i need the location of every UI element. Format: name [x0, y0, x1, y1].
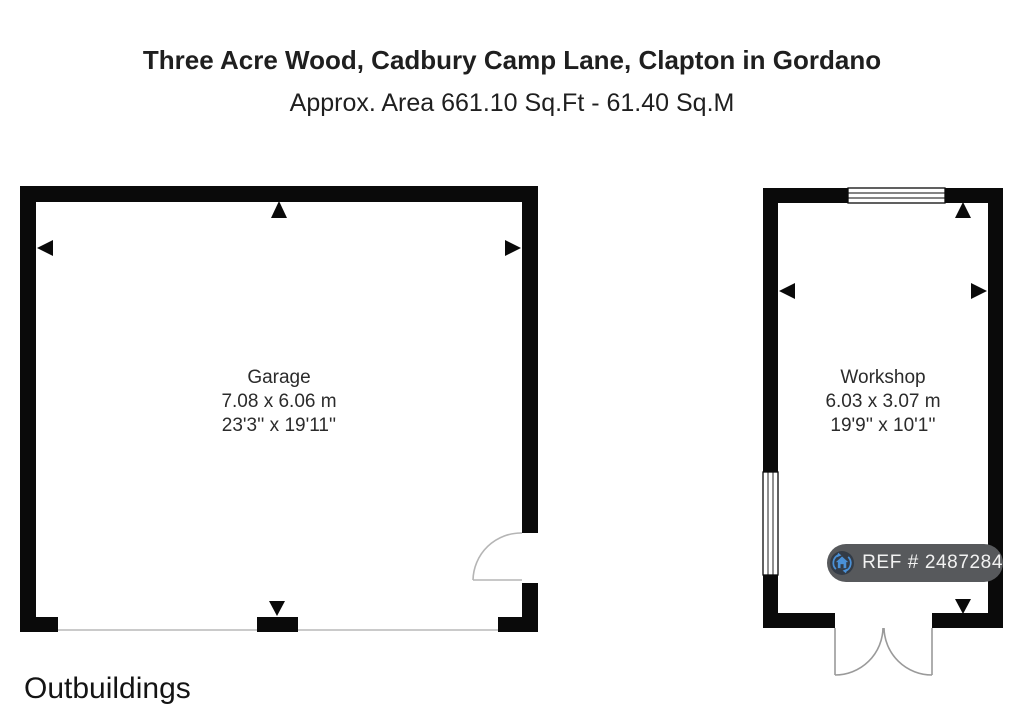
ref-badge: REF # 2487284: [827, 544, 1003, 582]
dimension-arrow-left-icon: [37, 240, 53, 256]
garage-door-swing-arc: [473, 533, 522, 580]
workshop-double-door-left-arc: [835, 628, 883, 675]
dimension-arrow-up-icon: [271, 201, 287, 218]
dimension-arrow-left-icon: [779, 283, 795, 299]
workshop-label: Workshop 6.03 x 3.07 m 19'9'' x 10'1'': [825, 366, 940, 438]
house-door: [841, 564, 844, 568]
garage-label: Garage 7.08 x 6.06 m 23'3'' x 19'11'': [221, 366, 336, 438]
garage-left-wall: [20, 186, 36, 632]
garage-bottom-left-wall-stub: [20, 617, 58, 632]
garage-bottom-center-pier: [257, 617, 298, 632]
dimension-arrow-down-icon: [955, 599, 971, 614]
dimension-arrow-down-icon: [269, 601, 285, 616]
room-size-metric: 7.08 x 6.06 m: [221, 390, 336, 414]
floorplan-page: Three Acre Wood, Cadbury Camp Lane, Clap…: [0, 0, 1024, 722]
plan-section-label: Outbuildings: [24, 672, 191, 706]
room-size-metric: 6.03 x 3.07 m: [825, 390, 940, 414]
garage-bottom-right-wall-stub: [498, 617, 538, 632]
room-name: Workshop: [825, 366, 940, 390]
ref-number: REF # 2487284: [862, 552, 1003, 574]
workshop-top-window: [848, 188, 945, 203]
workshop-bottom-wall-left: [763, 613, 835, 628]
workshop-left-wall-upper: [763, 188, 778, 472]
garage-right-wall-upper: [522, 186, 538, 533]
floorplan-drawing: [0, 0, 1024, 722]
room-name: Garage: [221, 366, 336, 390]
workshop-bottom-wall-right: [932, 613, 1003, 628]
dimension-arrow-right-icon: [505, 240, 521, 256]
workshop-double-door-right-arc: [884, 628, 932, 675]
dimension-arrow-up-icon: [955, 202, 971, 218]
room-size-imperial: 19'9'' x 10'1'': [825, 414, 940, 438]
house-circular-arrows-icon: [829, 546, 855, 580]
dimension-arrow-right-icon: [971, 283, 987, 299]
garage-top-wall: [20, 186, 538, 202]
room-size-imperial: 23'3'' x 19'11'': [221, 414, 336, 438]
workshop-left-window: [763, 472, 778, 575]
